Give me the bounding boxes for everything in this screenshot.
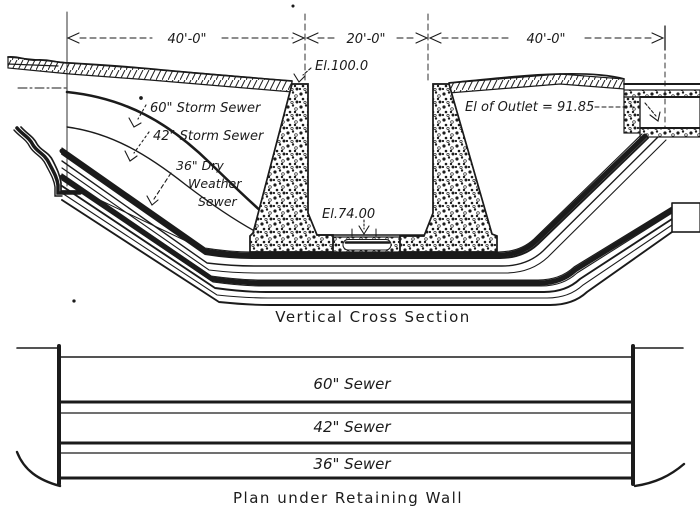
outlet-structure — [624, 84, 700, 232]
ground-surface-left — [8, 57, 292, 92]
ground-surface-right — [449, 74, 624, 93]
dim-label-right: 40'-0" — [526, 32, 565, 47]
engineering-drawing: 40'-0" 20'-0" 40'-0" El.100.0 60" Storm … — [0, 0, 700, 513]
cross-section-caption: Vertical Cross Section — [275, 308, 471, 326]
plan-sewer-60-label: 60" Sewer — [313, 375, 391, 393]
dry-weather-sewer-label-1: 36" Dry — [176, 158, 224, 173]
dim-label-left: 40'-0" — [167, 32, 206, 47]
arrow-right-end — [652, 33, 663, 43]
plan-view: 60" Sewer 42" Sewer 36" Sewer Plan under… — [17, 346, 684, 507]
elevation-top-label: El.100.0 — [315, 59, 368, 74]
plan-sewer-42-label: 42" Sewer — [313, 418, 391, 436]
channel-recess — [343, 240, 391, 251]
plan-sewer-36-label: 36" Sewer — [313, 455, 391, 473]
plan-labels: 60" Sewer 42" Sewer 36" Sewer Plan under… — [233, 375, 463, 507]
dry-weather-sewer-label-3: Sewer — [198, 194, 238, 209]
outlet-wall — [624, 97, 640, 133]
cross-section: 40'-0" 20'-0" 40'-0" El.100.0 60" Storm … — [8, 5, 700, 326]
arrow-left-end — [68, 33, 79, 43]
plan-left-wall-end — [17, 346, 60, 486]
plan-caption: Plan under Retaining Wall — [233, 489, 463, 507]
elevation-floor-label: El.74.00 — [322, 207, 375, 222]
drawing-page: 40'-0" 20'-0" 40'-0" El.100.0 60" Storm … — [0, 0, 700, 513]
storm-sewer-42-label: 42" Storm Sewer — [153, 129, 265, 144]
dim-label-mid: 20'-0" — [346, 32, 385, 47]
dry-weather-sewer-label-2: Weather — [188, 176, 242, 191]
storm-sewer-60-label: 60" Storm Sewer — [150, 101, 262, 116]
left-retaining-wall — [250, 84, 333, 252]
elevation-outlet-label: El of Outlet = 91.85 — [465, 100, 594, 115]
plan-right-wall-end — [633, 346, 684, 486]
